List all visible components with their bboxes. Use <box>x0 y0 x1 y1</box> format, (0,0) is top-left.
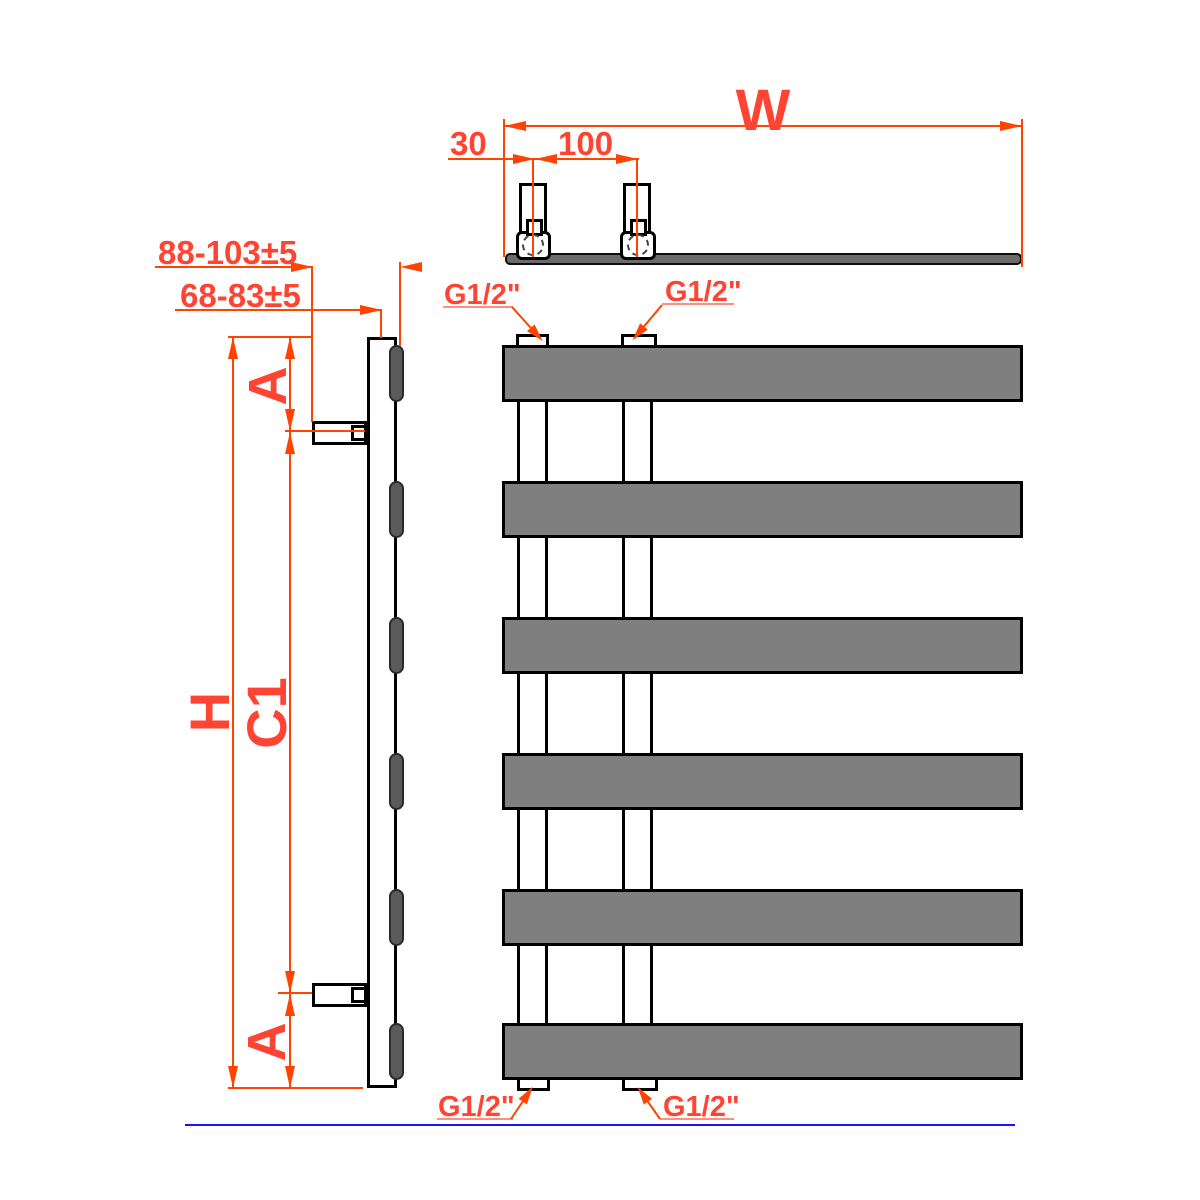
ext-line-bottom <box>228 1087 363 1089</box>
dim-arrow-a-top-up <box>285 337 295 359</box>
wall-bracket-bottom-lug <box>351 987 367 1003</box>
towel-bar-5 <box>502 889 1023 946</box>
plan-view-slab <box>505 253 1022 265</box>
dim-arrow-h-bottom <box>228 1066 238 1088</box>
connection-underline-bottom-left <box>437 1118 513 1120</box>
connection-underline-top-left <box>443 306 513 308</box>
radiator-dimension-drawing: W 30 100 88-103±5 68-83±5 A H C1 A G1/2"… <box>0 0 1200 1200</box>
side-bar-profile-3 <box>389 617 404 674</box>
connection-underline-bottom-right <box>660 1118 734 1120</box>
ext-line-bar-face <box>399 262 401 346</box>
dim-arrow-c1-bottom <box>285 971 295 993</box>
valve-port-circle-right <box>627 234 649 256</box>
dim-arrow-wall-outer-left <box>291 262 313 272</box>
towel-bar-1 <box>502 345 1023 402</box>
side-bar-profile-2 <box>389 481 404 538</box>
riser-pipe-left <box>517 345 548 1080</box>
ext-line-pipe-center <box>380 309 382 338</box>
dim-line-wall-outer <box>155 266 313 268</box>
centerline-bracket-bottom <box>278 992 312 994</box>
towel-bar-4 <box>502 753 1023 810</box>
ext-line-top <box>228 336 313 338</box>
wall-bracket-top-lug <box>351 425 367 441</box>
dim-arrow-wall-inner <box>360 305 382 315</box>
centerline-valve-left <box>532 158 534 257</box>
centerline-valve-right <box>636 158 638 257</box>
dim-label-wall-outer: 88-103±5 <box>158 236 297 269</box>
towel-bar-6 <box>502 1023 1023 1080</box>
dim-label-a-bottom: A <box>240 1023 294 1062</box>
dim-arrow-c1-top <box>285 432 295 454</box>
dim-arrow-wall-outer-right <box>400 262 422 272</box>
dim-arrow-a-bottom-down <box>285 1066 295 1088</box>
towel-bar-2 <box>502 481 1023 538</box>
dim-label-c1: C1 <box>239 677 295 749</box>
riser-pipe-right <box>622 345 653 1080</box>
side-bar-profile-6 <box>389 1023 404 1080</box>
dim-arrow-100-right <box>616 154 638 164</box>
dim-arrow-a-bottom-up <box>285 994 295 1016</box>
dim-label-wall-inner: 68-83±5 <box>180 279 301 312</box>
ext-line-w-right <box>1021 119 1023 267</box>
ext-line-bracket-face <box>311 266 313 422</box>
leader-bottom-right <box>639 1090 661 1120</box>
dim-arrow-100-left <box>535 154 557 164</box>
dim-line-wall-inner <box>175 309 382 311</box>
side-bar-profile-1 <box>389 345 404 402</box>
centerline-bracket-top <box>285 430 365 432</box>
ground-line <box>185 1124 1015 1126</box>
dim-arrow-h-top <box>228 337 238 359</box>
connection-underline-top-right <box>662 303 734 305</box>
side-view-riser-profile <box>367 337 397 1088</box>
dim-label-a-top: A <box>241 367 295 406</box>
dim-label-30: 30 <box>450 127 487 160</box>
dim-label-h: H <box>182 692 238 732</box>
leader-top-right <box>634 304 663 337</box>
dim-label-100: 100 <box>558 127 613 160</box>
towel-bar-3 <box>502 617 1023 674</box>
side-bar-profile-4 <box>389 753 404 810</box>
side-bar-profile-5 <box>389 889 404 946</box>
dim-arrow-a-top-down <box>285 409 295 431</box>
